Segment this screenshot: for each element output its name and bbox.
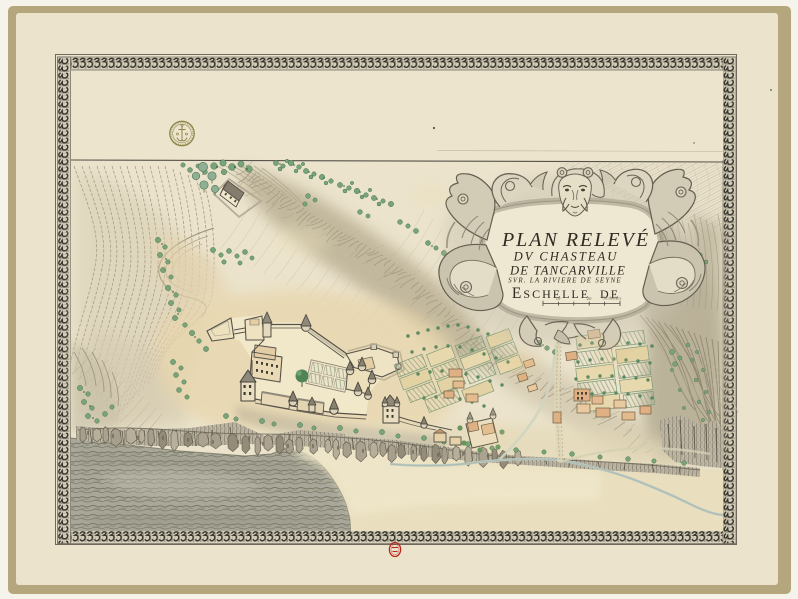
svg-text:SVR. LA RIVIERE DE SEYNE: SVR. LA RIVIERE DE SEYNE — [508, 277, 622, 285]
svg-text:PLAN RELEVÉ: PLAN RELEVÉ — [501, 228, 650, 251]
svg-text:10: 10 — [556, 296, 561, 301]
svg-text:20: 20 — [587, 296, 592, 301]
svg-text:DV CHASTEAU: DV CHASTEAU — [513, 250, 619, 264]
svg-text:30.thoises: 30.thoises — [603, 296, 622, 301]
svg-text:DE TANCARVILLE: DE TANCARVILLE — [509, 264, 626, 278]
